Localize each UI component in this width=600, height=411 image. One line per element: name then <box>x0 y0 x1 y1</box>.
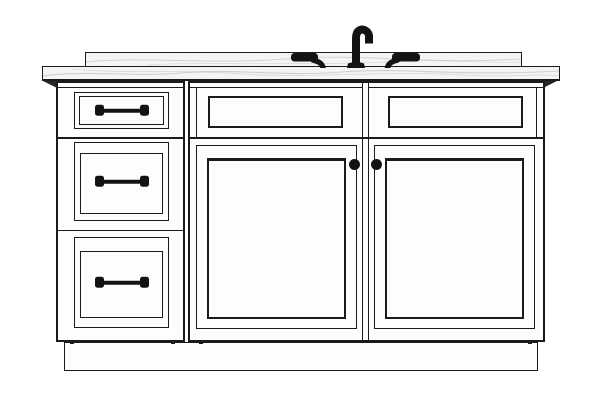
drawer-bottom <box>74 237 169 328</box>
face-frame-stile-line-right <box>536 88 537 139</box>
drawer-middle <box>74 142 169 221</box>
faucet-spout <box>347 30 369 68</box>
door-recessed-panel <box>385 158 524 319</box>
cabinet-foot <box>199 340 203 344</box>
face-frame-rail-line <box>58 230 183 231</box>
door-knob-right <box>371 159 382 170</box>
drawer-cabinet <box>56 81 185 342</box>
drawer-bar-pull <box>96 108 148 113</box>
face-frame-top-line <box>58 87 183 88</box>
countertop <box>42 66 560 81</box>
center-stile <box>362 83 369 340</box>
cabinet-foot <box>171 340 175 344</box>
cabinet-door-left <box>196 145 357 329</box>
door-cabinet <box>188 81 545 342</box>
cabinet-foot <box>70 340 74 344</box>
false-drawer-front-right <box>388 96 523 128</box>
false-drawer-front-left <box>208 96 343 128</box>
door-recessed-panel <box>207 158 346 319</box>
face-frame-rail-line <box>190 137 543 139</box>
face-frame-rail-line <box>58 137 183 139</box>
drawer-top <box>74 92 169 129</box>
faucet-handle-right <box>388 53 421 68</box>
marble-veining <box>43 67 559 79</box>
faucet-handle-left <box>291 53 323 68</box>
faucet <box>280 22 430 68</box>
cabinet-foot <box>528 340 532 344</box>
door-knob-left <box>349 159 360 170</box>
vanity-illustration <box>0 0 600 411</box>
drawer-bar-pull <box>96 280 148 285</box>
face-frame-stile-line-left <box>196 88 197 139</box>
drawer-bar-pull <box>96 179 148 184</box>
toe-kick <box>64 342 538 371</box>
cabinet-door-right <box>374 145 535 329</box>
